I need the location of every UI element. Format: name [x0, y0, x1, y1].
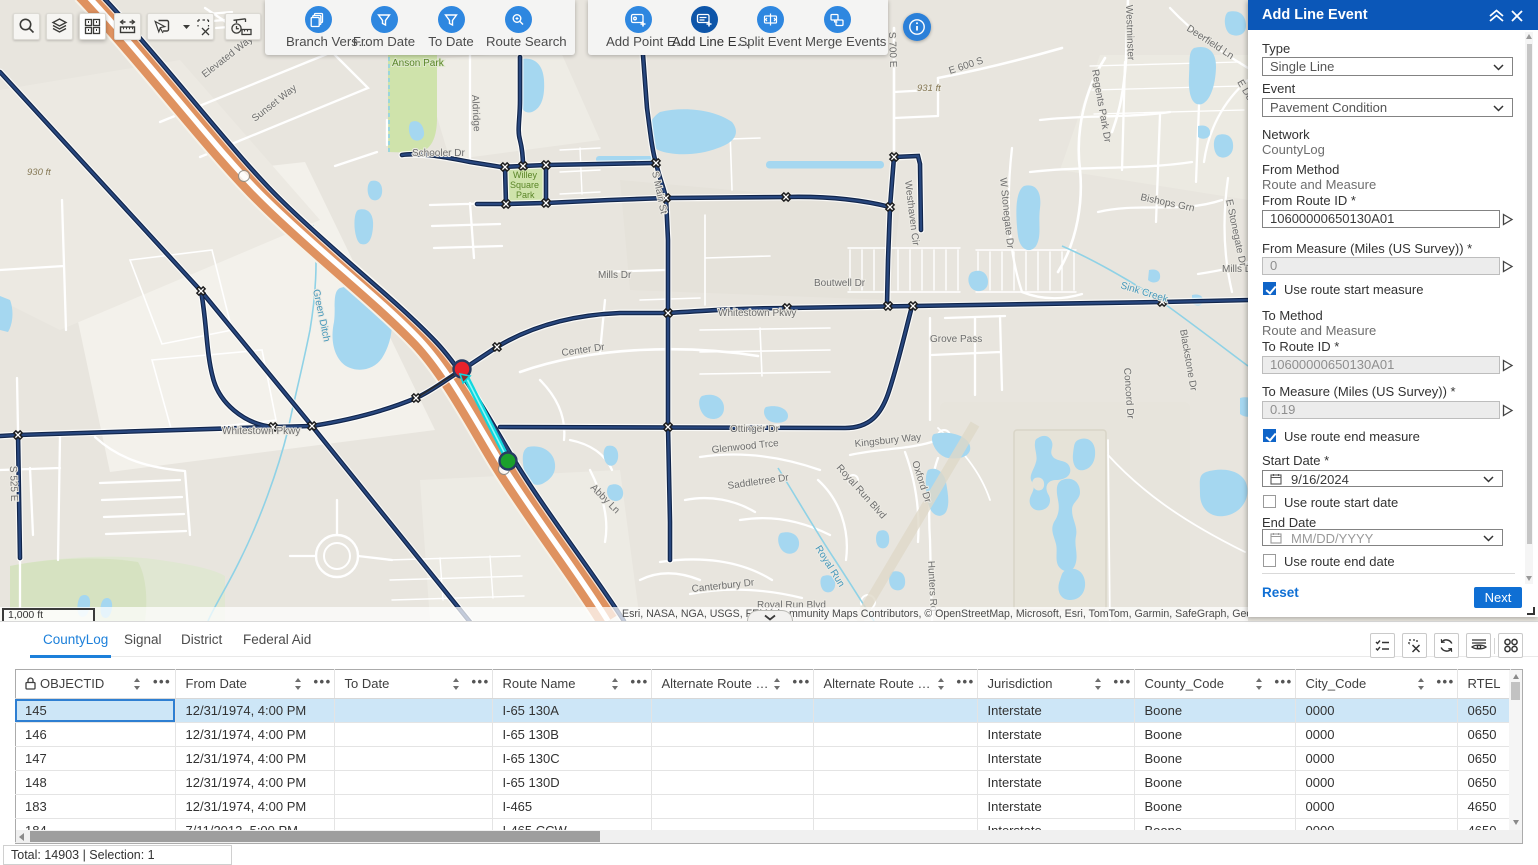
svg-text:W Stonegate Dr: W Stonegate Dr: [997, 177, 1015, 250]
svg-text:Park: Park: [516, 190, 535, 200]
svg-text:Anson Park: Anson Park: [392, 58, 445, 69]
svg-text:Schooler Dr: Schooler Dr: [412, 148, 465, 159]
svg-text:931 ft: 931 ft: [917, 83, 941, 94]
svg-text:Aldridge: Aldridge: [469, 95, 482, 133]
svg-text:Ottinger Dr: Ottinger Dr: [730, 424, 780, 435]
svg-text:Willey: Willey: [513, 170, 537, 180]
svg-text:E 600 S: E 600 S: [948, 55, 986, 77]
svg-text:Westminster: Westminster: [1123, 5, 1136, 61]
svg-text:Hunters Rd: Hunters Rd: [925, 561, 939, 612]
svg-text:Saddletree Dr: Saddletree Dr: [727, 472, 790, 492]
svg-text:930 ft: 930 ft: [27, 167, 51, 178]
svg-text:Bishops Grn: Bishops Grn: [1139, 192, 1195, 214]
svg-text:S 525 E: S 525 E: [7, 466, 19, 502]
svg-text:Whitestown Pkwy: Whitestown Pkwy: [222, 426, 300, 437]
svg-text:Royal Run Blvd: Royal Run Blvd: [834, 463, 888, 522]
svg-text:Whitestown Pkwy: Whitestown Pkwy: [718, 308, 796, 319]
svg-text:Square: Square: [510, 180, 539, 190]
svg-text:Grove Pass: Grove Pass: [930, 334, 982, 345]
svg-text:Boutwell Dr: Boutwell Dr: [814, 278, 866, 289]
svg-text:Mills Dr: Mills Dr: [598, 270, 632, 281]
svg-text:Blackstone Dr: Blackstone Dr: [1177, 329, 1199, 393]
svg-text:Glenwood Trce: Glenwood Trce: [711, 438, 779, 456]
